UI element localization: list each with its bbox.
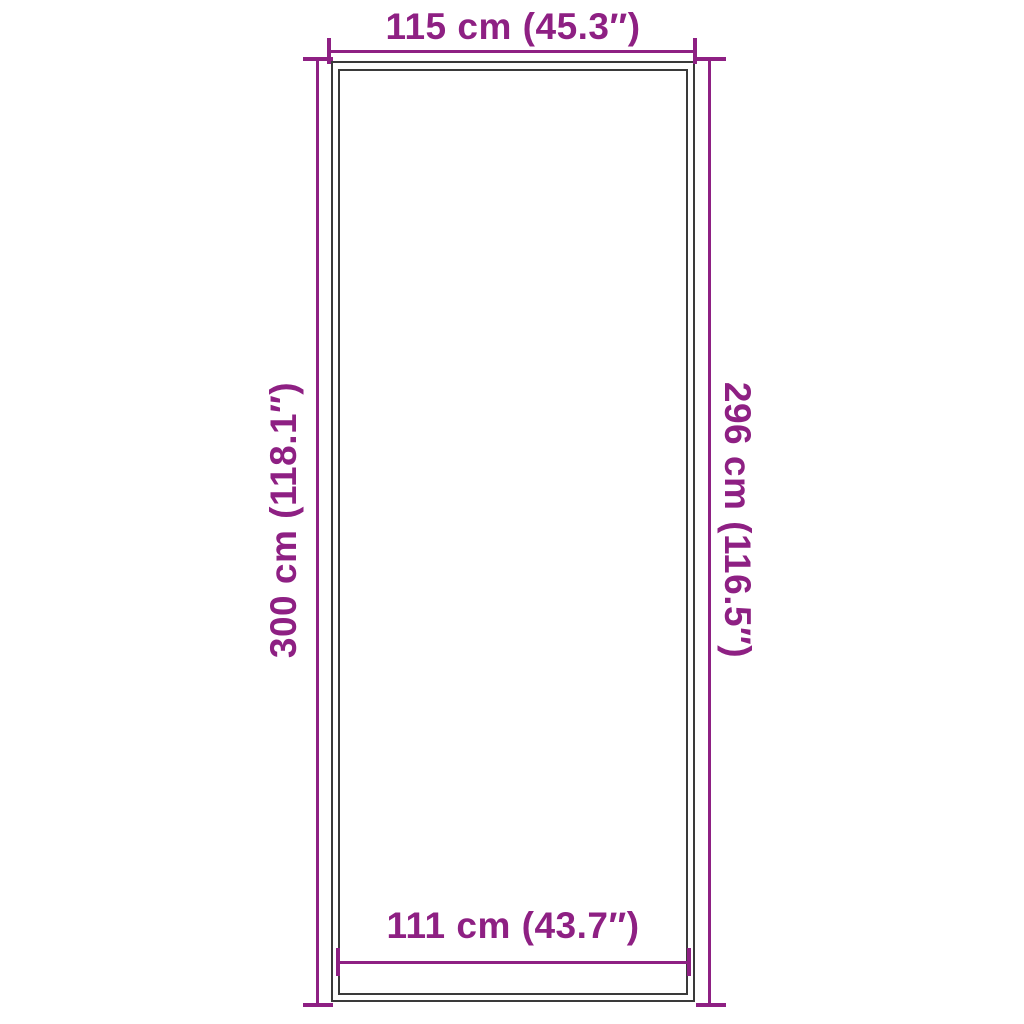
bottom-dimension-tick-right [687,948,691,976]
right-dimension-label: 296 cm (116.5″) [716,370,758,670]
bottom-dimension-tick-left [336,948,340,976]
right-dimension-tick-bottom [696,1003,726,1007]
left-dimension-tick-top [303,57,333,61]
bottom-dimension-line [338,961,689,964]
left-dimension-tick-bottom [303,1003,333,1007]
top-dimension-line [329,50,697,53]
right-dimension-tick-top [696,57,726,61]
top-dimension-label: 115 cm (45.3″) [263,6,763,48]
bottom-dimension-label: 111 cm (43.7″) [263,905,763,947]
left-dimension-label: 300 cm (118.1″) [263,370,305,670]
dimension-diagram: 115 cm (45.3″) 300 cm (118.1″) 296 cm (1… [0,0,1024,1024]
left-dimension-line [316,59,319,1005]
product-outline-inner [338,69,688,995]
right-dimension-line [708,59,711,1005]
